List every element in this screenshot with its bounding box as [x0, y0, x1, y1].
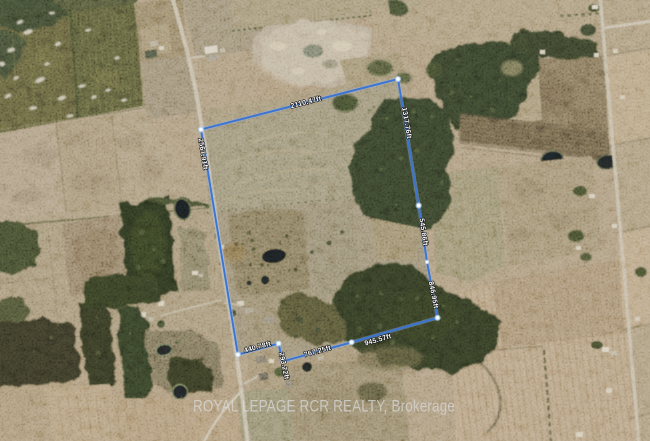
svg-text:ROYAL LEPAGE RCR REALTY, Broke: ROYAL LEPAGE RCR REALTY, Brokerage — [193, 397, 455, 416]
